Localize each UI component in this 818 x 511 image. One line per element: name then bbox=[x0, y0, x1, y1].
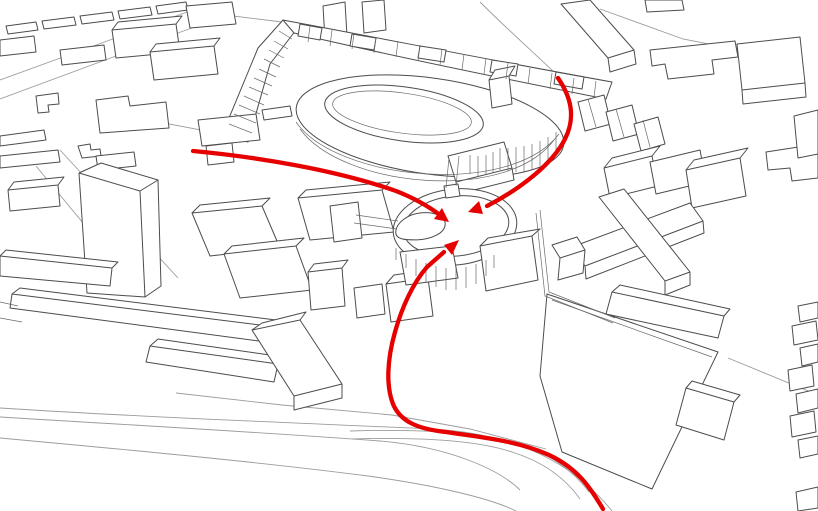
cube-top-center-b bbox=[362, 0, 386, 33]
road-bottom-upper bbox=[0, 408, 612, 511]
right-edge-box-g bbox=[798, 436, 818, 458]
strip-row1-d bbox=[118, 7, 152, 19]
strip-row1-c bbox=[80, 12, 114, 24]
site-diagram-svg bbox=[0, 0, 818, 511]
block-left-edge bbox=[0, 36, 36, 56]
road-bottom-mid bbox=[0, 417, 520, 490]
box-right-edge-mid bbox=[794, 110, 818, 158]
right-edge-box-c bbox=[800, 344, 818, 366]
right-edge-box-f bbox=[790, 411, 816, 437]
platform-side-box bbox=[676, 381, 740, 440]
strip-left-of-loop bbox=[262, 106, 292, 120]
walkway-platform-west bbox=[330, 202, 362, 242]
buildings-layer bbox=[0, 0, 818, 511]
right-edge-box-b bbox=[792, 321, 818, 345]
strip-left-a bbox=[0, 130, 46, 146]
house-mid bbox=[354, 284, 385, 318]
strip-row1-e bbox=[156, 2, 188, 14]
pavilion-annex-right bbox=[480, 229, 540, 291]
slab-topright-diag bbox=[561, 0, 636, 72]
cluster-cube bbox=[552, 237, 585, 280]
slab-mid-b bbox=[224, 238, 312, 298]
strip-row1-a bbox=[6, 22, 38, 34]
slab-topright-big bbox=[737, 37, 806, 104]
strip-row1-b bbox=[42, 17, 76, 29]
right-edge-box-e bbox=[796, 389, 818, 413]
gabled-house-b bbox=[606, 105, 639, 141]
stub-top-edge bbox=[645, 0, 684, 12]
terrace-base-block-a bbox=[198, 114, 260, 146]
block-topleft-b bbox=[150, 38, 220, 80]
strip-left-b bbox=[0, 150, 60, 168]
building-topright-lflat bbox=[650, 41, 738, 79]
right-edge-box-d bbox=[788, 365, 814, 391]
right-corner-box bbox=[796, 487, 818, 511]
path-by-route-b bbox=[352, 438, 580, 499]
right-edge-box-a bbox=[798, 302, 818, 322]
architectural-site-diagram bbox=[0, 0, 818, 511]
block-top-edge bbox=[186, 2, 236, 28]
building-small-l bbox=[36, 93, 59, 113]
block-left-of-tower bbox=[8, 177, 64, 211]
building-l-shape bbox=[96, 96, 169, 133]
road-bottom-lower bbox=[0, 438, 516, 511]
tower-small-mid bbox=[308, 260, 348, 310]
